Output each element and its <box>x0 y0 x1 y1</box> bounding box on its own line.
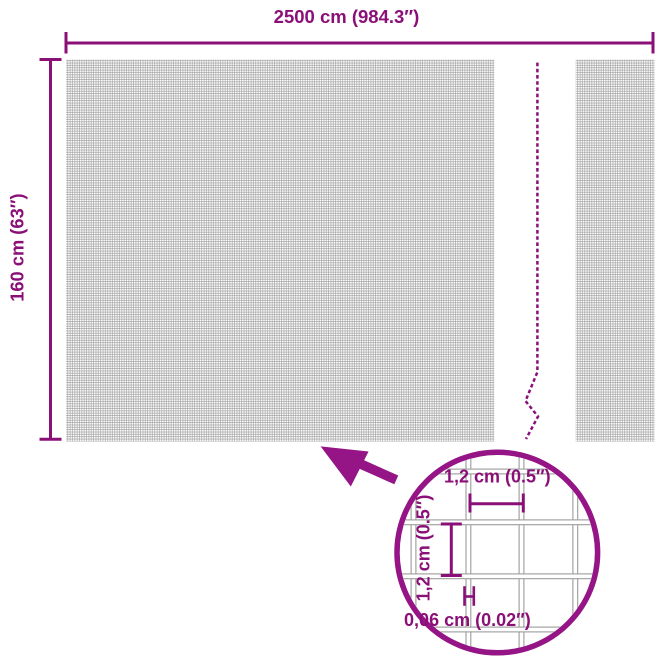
svg-text:1,2 cm (0.5″): 1,2 cm (0.5″) <box>413 495 433 602</box>
svg-text:0,06 cm (0.02″): 0,06 cm (0.02″) <box>404 610 531 630</box>
svg-text:160 cm (63″): 160 cm (63″) <box>6 193 27 301</box>
svg-text:1,2 cm (0.5″): 1,2 cm (0.5″) <box>444 467 551 487</box>
svg-text:2500 cm (984.3″): 2500 cm (984.3″) <box>274 6 420 27</box>
